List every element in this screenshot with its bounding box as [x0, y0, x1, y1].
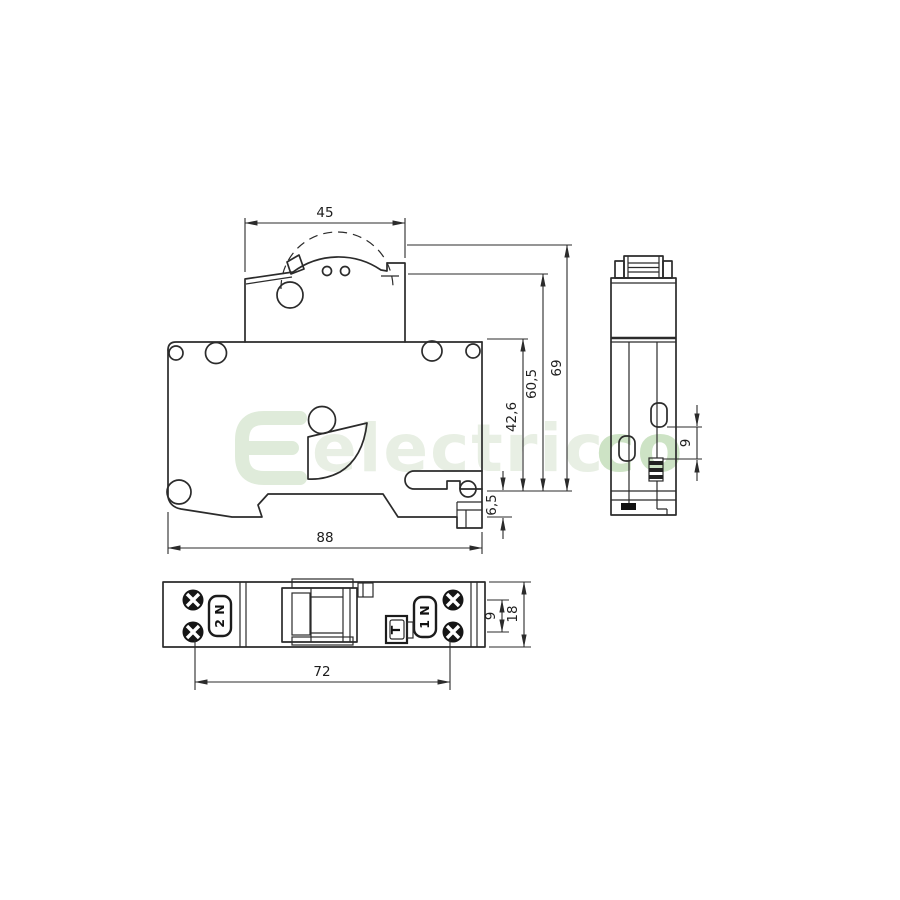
watermark-logo-icon — [242, 418, 300, 478]
dim-label-din-clip: 6,5 — [484, 494, 500, 515]
technical-drawing-page: electric co — [0, 0, 900, 900]
bottom-view: 2 N 1 N T 72 — [163, 579, 531, 690]
terminal-plate-right: 1 N — [414, 597, 436, 637]
front-lever-section — [245, 232, 405, 342]
front-view: 45 88 69 60,5 42,6 6,5 — [167, 205, 572, 554]
dim-label-screw-spacing: 72 — [313, 664, 330, 680]
watermark-text-highlight: co — [596, 410, 684, 487]
dim-bottom-right: 9 18 — [483, 582, 531, 647]
dim-label-module-width: 18 — [505, 605, 521, 622]
toggle-travel-arc — [281, 232, 393, 289]
terminal-label-left: 2 N — [212, 604, 227, 628]
screw — [443, 590, 464, 611]
bottom-mechanism — [282, 579, 373, 645]
dim-label-height-upper: 60,5 — [524, 369, 540, 399]
dim-label-height-total: 69 — [549, 359, 565, 376]
terminal-plate-left: 2 N — [209, 596, 231, 636]
screw — [183, 622, 204, 643]
watermark-text: electric — [312, 410, 605, 487]
dim-label-side-latch: 9 — [678, 439, 694, 448]
dim-label-terminal-pitch: 9 — [483, 612, 499, 621]
test-button: T — [386, 616, 413, 643]
screw — [443, 622, 464, 643]
dim-top-width: 45 — [245, 205, 405, 272]
dim-heights: 69 60,5 42,6 6,5 — [407, 245, 572, 539]
dim-overall-width: 88 — [168, 512, 482, 554]
ribbed-latch — [649, 458, 663, 481]
screw — [183, 590, 204, 611]
terminal-label-right: 1 N — [417, 605, 432, 629]
test-button-label: T — [388, 625, 403, 634]
drawing-canvas: electric co — [0, 0, 900, 900]
dim-label-overall-width: 88 — [316, 530, 333, 546]
dim-label-height-body: 42,6 — [504, 402, 520, 432]
dim-label-top-width: 45 — [316, 205, 333, 221]
